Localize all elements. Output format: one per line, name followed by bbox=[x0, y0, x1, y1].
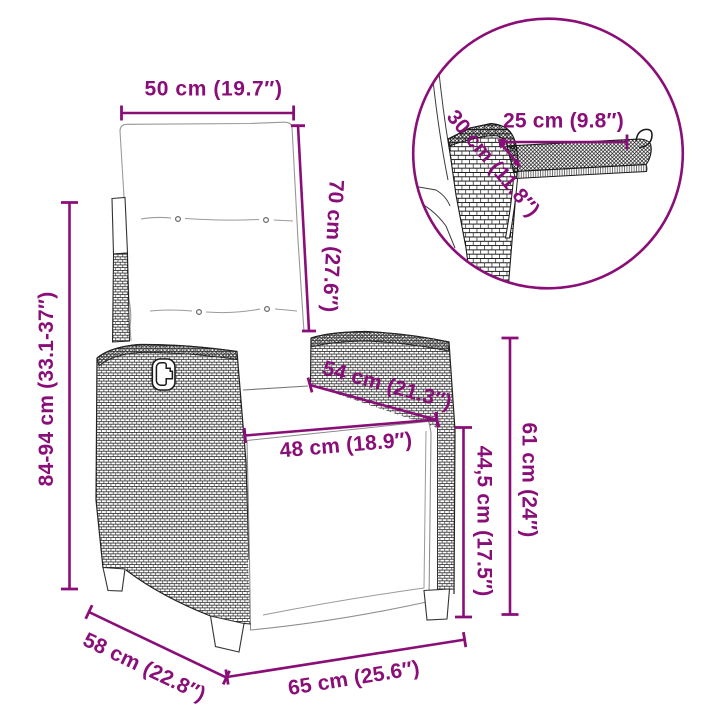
svg-text:70 cm (27.6″): 70 cm (27.6″) bbox=[318, 179, 348, 313]
svg-text:58 cm (22.8″): 58 cm (22.8″) bbox=[79, 628, 209, 706]
svg-text:84-94 cm (33.1-37″): 84-94 cm (33.1-37″) bbox=[35, 292, 58, 487]
svg-text:25 cm (9.8″): 25 cm (9.8″) bbox=[503, 109, 624, 132]
svg-text:44,5 cm (17.5″): 44,5 cm (17.5″) bbox=[473, 446, 496, 597]
svg-text:61 cm (24″): 61 cm (24″) bbox=[518, 423, 541, 538]
svg-text:65 cm (25.6″): 65 cm (25.6″) bbox=[286, 657, 421, 701]
svg-text:50 cm (19.7″): 50 cm (19.7″) bbox=[144, 77, 282, 100]
